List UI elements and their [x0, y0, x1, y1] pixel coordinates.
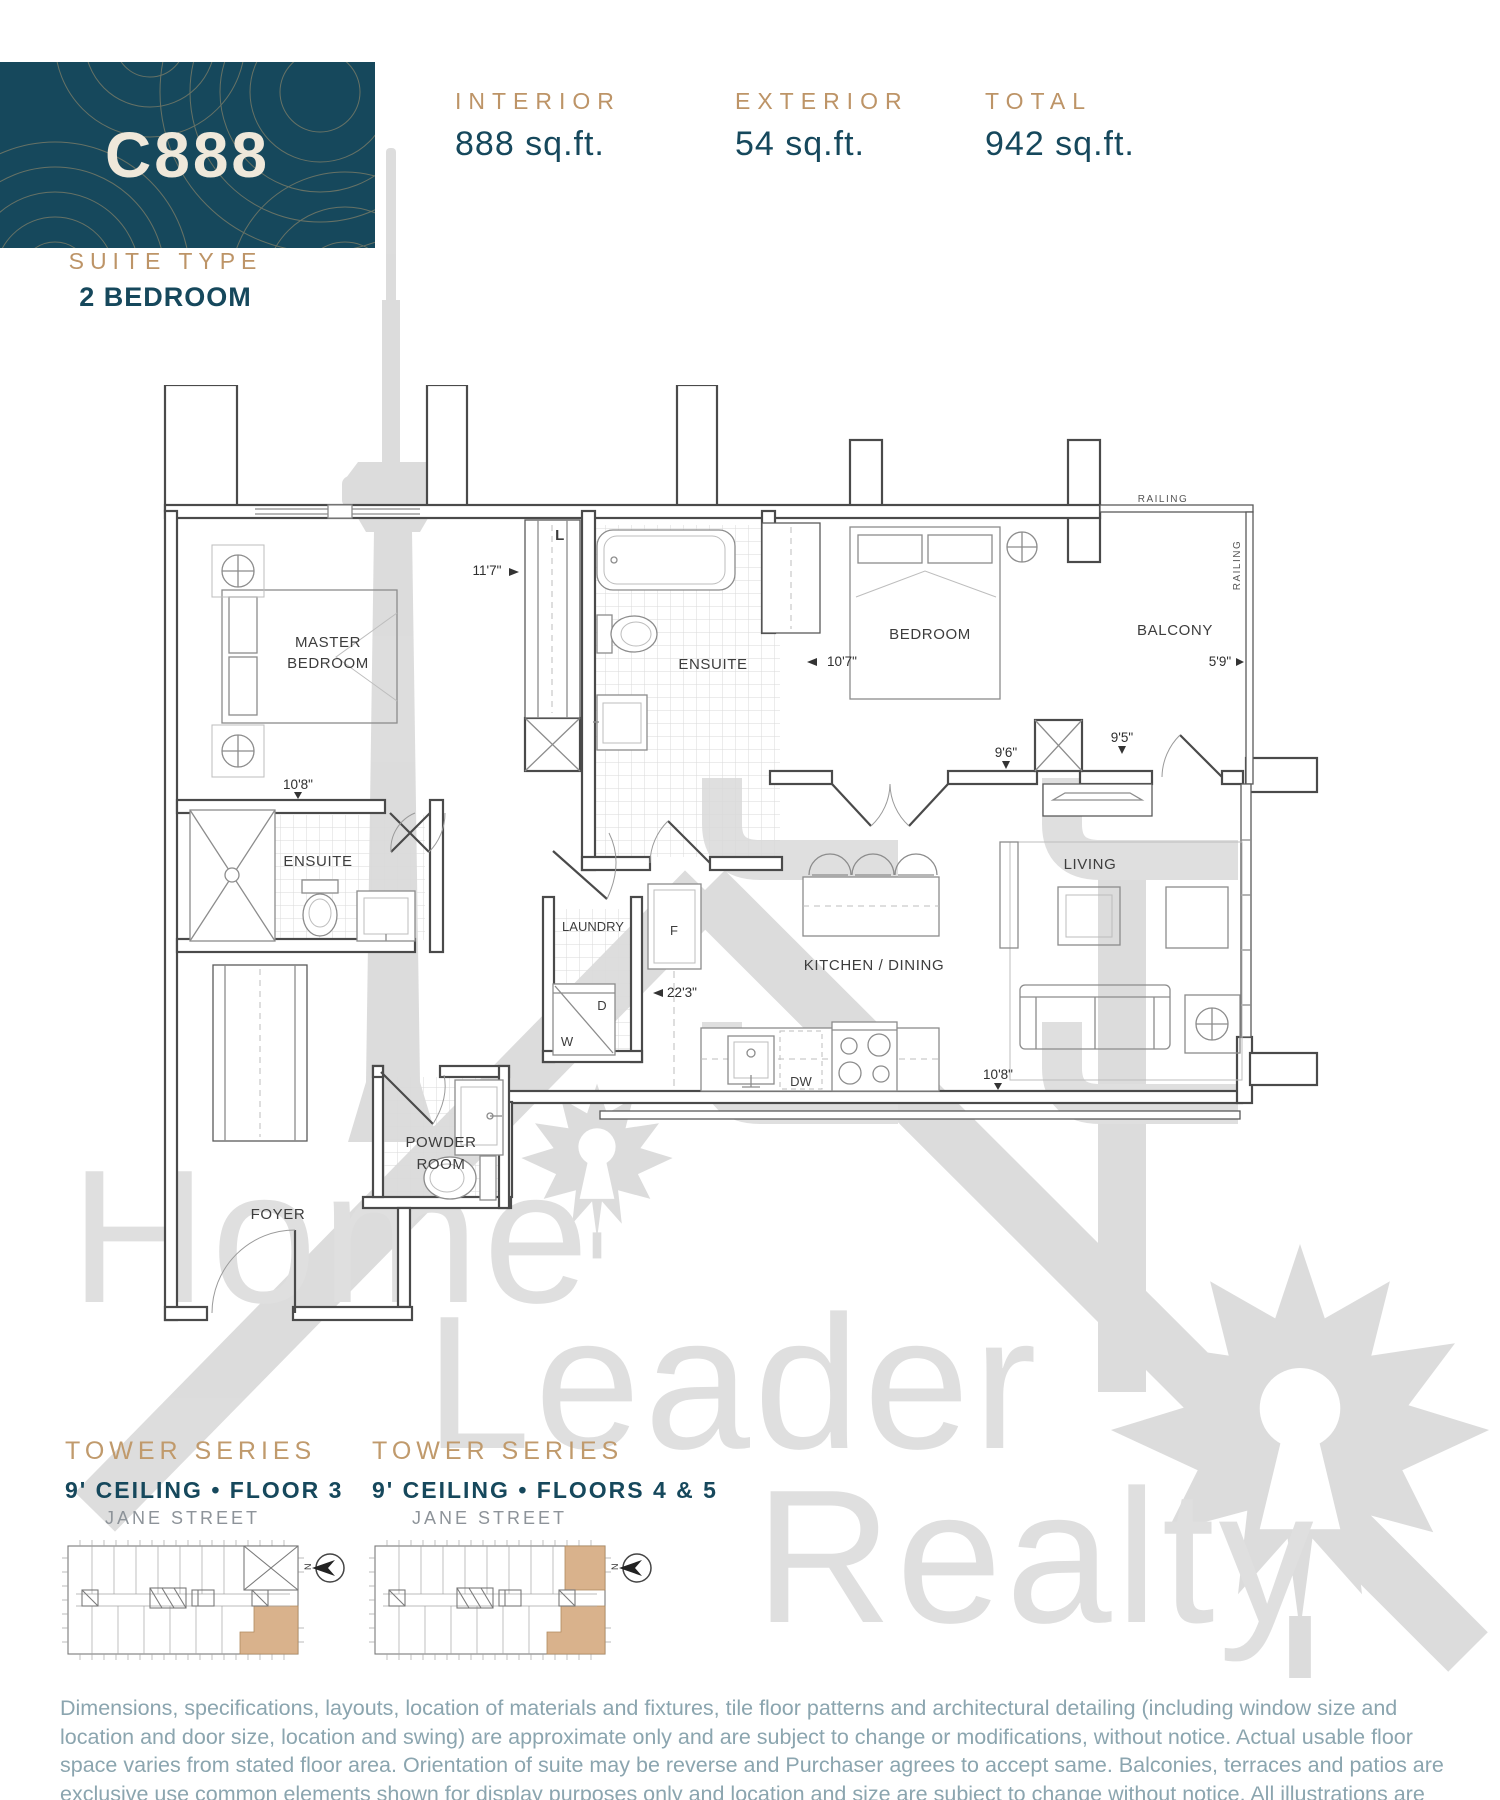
shaft-left	[525, 718, 580, 771]
master-vanity	[357, 891, 415, 941]
dim-arrow	[1118, 746, 1126, 754]
dim-suite-length: 22'3"	[667, 985, 697, 1000]
dryer-label: D	[597, 998, 606, 1013]
disclaimer-line: Dimensions, specifications, layouts, loc…	[60, 1694, 1460, 1723]
master-ceiling-light-2	[212, 725, 264, 777]
interior-area: INTERIOR 888 sq.ft.	[455, 88, 621, 164]
railing-right-label: RAILING	[1232, 540, 1243, 591]
ensuite-toilet	[597, 615, 657, 653]
suite-code: C888	[105, 118, 270, 192]
exterior-label: EXTERIOR	[735, 88, 909, 115]
armchair	[1058, 887, 1120, 945]
bedroom-closet	[762, 523, 820, 633]
suite-type-value: 2 BEDROOM	[58, 282, 273, 313]
laundry-label: LAUNDRY	[562, 919, 624, 934]
tower-series-2-heading: TOWER SERIES	[372, 1437, 623, 1466]
dim-master-width: 10'8"	[283, 777, 313, 792]
disclaimer-line: space varies from stated floor area. Ori…	[60, 1751, 1460, 1780]
foyer-closet	[213, 965, 307, 1141]
north-label-2: N	[610, 1564, 620, 1571]
keyplan-core	[82, 1588, 268, 1608]
key-plan-floors-4-5: N	[369, 1532, 669, 1667]
disclaimer: Dimensions, specifications, layouts, loc…	[60, 1694, 1460, 1800]
fridge-label: F	[670, 923, 678, 938]
dim-balcony-width: 9'5"	[1111, 730, 1134, 745]
total-area: TOTAL 942 sq.ft.	[985, 88, 1135, 164]
interior-value: 888 sq.ft.	[455, 125, 621, 164]
keyplan-core	[389, 1588, 575, 1608]
powder-label-line2: ROOM	[416, 1156, 465, 1173]
master-ensuite-label: ENSUITE	[283, 853, 352, 870]
terrace-cross	[244, 1546, 298, 1590]
tv-console	[1000, 842, 1018, 948]
floor-plan: MASTER BEDROOM 11'7" L ENSUITE 10'7" BED…	[150, 385, 1330, 1335]
floorplan-sheet: Home Leader Realty C888 INTERIOR 888 sq.…	[0, 0, 1500, 1800]
railing-top-label: RAILING	[1138, 494, 1189, 505]
north-label-1: N	[303, 1564, 313, 1571]
disclaimer-line: exclusive use common elements shown for …	[60, 1780, 1460, 1800]
dim-arrow	[1236, 658, 1244, 666]
dim-arrow	[1002, 761, 1010, 769]
lamp-table	[1185, 995, 1240, 1053]
ceiling-floors-2: 9' CEILING • FLOORS 4 & 5	[372, 1477, 718, 1504]
master-shower	[190, 810, 275, 941]
master-toilet	[302, 880, 338, 936]
master-bedroom-label-line2: BEDROOM	[287, 655, 369, 672]
highlighted-suite-lower	[547, 1606, 605, 1654]
highlighted-suite-upper	[565, 1546, 605, 1590]
dim-master-length: 11'7"	[473, 563, 502, 578]
suite-type-label: SUITE TYPE	[58, 248, 273, 275]
exterior-area: EXTERIOR 54 sq.ft.	[735, 88, 909, 164]
ensuite-upper-label: ENSUITE	[678, 656, 747, 673]
bedroom-double-doors	[832, 784, 948, 826]
balcony-label: BALCONY	[1137, 622, 1213, 639]
linen-label: L	[555, 527, 565, 544]
bedroom-label: BEDROOM	[889, 626, 971, 643]
exterior-value: 54 sq.ft.	[735, 125, 909, 164]
kitchen-counter	[701, 1022, 939, 1091]
foyer-label: FOYER	[251, 1206, 306, 1223]
watermark-word-realty: Realty	[755, 1451, 1318, 1663]
side-table	[1166, 887, 1228, 948]
north-compass: N	[610, 1554, 651, 1582]
dim-arrow	[509, 568, 519, 576]
dim-living-width: 10'8"	[983, 1067, 1013, 1082]
master-bedroom-label-line1: MASTER	[295, 634, 361, 651]
shaft-right	[1035, 720, 1082, 771]
suite-code-box: C888	[0, 62, 375, 248]
interior-label: INTERIOR	[455, 88, 621, 115]
jane-street-2: JANE STREET	[377, 1508, 602, 1529]
kitchen-dining-label: KITCHEN / DINING	[804, 957, 944, 974]
total-value: 942 sq.ft.	[985, 125, 1135, 164]
master-ceiling-light-1	[212, 545, 264, 597]
sofa	[1020, 985, 1170, 1049]
key-plan-floor-3: N	[62, 1532, 362, 1667]
dim-arrow	[653, 989, 663, 997]
disclaimer-line: location and door size, location and swi…	[60, 1723, 1460, 1752]
washer-label: W	[561, 1034, 574, 1049]
dim-arrow	[294, 792, 302, 799]
living-label: LIVING	[1064, 856, 1117, 873]
ensuite-vanity	[593, 695, 647, 750]
bedroom-bed	[850, 527, 1000, 699]
total-label: TOTAL	[985, 88, 1135, 115]
balcony-door	[1162, 735, 1222, 777]
tower-series-1-heading: TOWER SERIES	[65, 1437, 316, 1466]
ceiling-floor-1: 9' CEILING • FLOOR 3	[65, 1477, 343, 1504]
dim-arrow	[807, 658, 817, 666]
living-furniture	[1000, 842, 1242, 1080]
linen-closet	[525, 520, 580, 718]
stove	[832, 1022, 897, 1091]
powder-label-line1: POWDER	[405, 1134, 476, 1151]
dim-bedroom: 10'7"	[827, 654, 857, 669]
bathtub	[597, 530, 735, 590]
bedroom-ceiling-light	[1007, 532, 1037, 562]
entry-door	[212, 1230, 295, 1313]
dishwasher-label: DW	[790, 1074, 812, 1089]
highlighted-suite	[240, 1606, 298, 1654]
planter	[1043, 784, 1152, 816]
dim-arrow	[994, 1083, 1002, 1090]
jane-street-1: JANE STREET	[70, 1508, 295, 1529]
dim-balcony-depth: 5'9"	[1209, 654, 1232, 669]
dim-hall-width: 9'6"	[995, 745, 1018, 760]
north-compass: N	[303, 1554, 344, 1582]
kitchen-island	[803, 854, 939, 936]
